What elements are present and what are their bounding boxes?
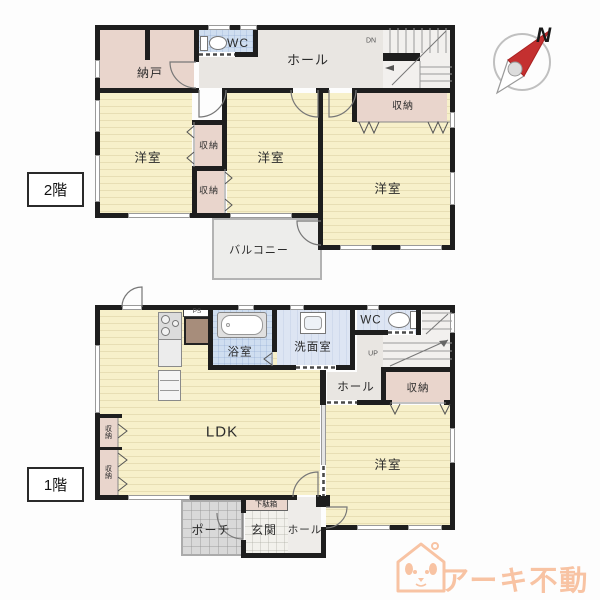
window <box>450 172 455 205</box>
room-label-washroom: 洗面室 <box>294 342 332 354</box>
wall <box>316 88 329 93</box>
window <box>95 345 100 413</box>
floor-tag-2f: 2階 <box>27 172 84 207</box>
wall <box>357 400 386 405</box>
window <box>240 25 257 30</box>
stove-burner-icon <box>161 327 170 336</box>
wall <box>383 367 452 372</box>
pipe-space-label: PS <box>193 309 202 316</box>
wall <box>356 88 452 93</box>
company-logo-text: アーキ不動産 <box>441 559 600 600</box>
wall <box>100 414 122 418</box>
wall <box>208 305 213 366</box>
floor-tag-2f-label: 2階 <box>44 179 67 200</box>
wall <box>95 88 199 93</box>
window <box>408 525 442 530</box>
room-label-closet-left-lower: 収納 <box>105 465 112 479</box>
window <box>400 245 442 250</box>
wall <box>194 25 199 62</box>
room-1f-stairs-upper <box>422 310 450 335</box>
wall <box>272 305 277 352</box>
room-label-closet-right-2f: 収納 <box>392 102 414 112</box>
door-arc <box>122 287 142 307</box>
wall <box>235 52 258 57</box>
room-label-nando: 納戸 <box>137 67 163 79</box>
window <box>367 305 379 310</box>
wall <box>192 169 197 213</box>
room-label-ldk: LDK <box>206 425 238 440</box>
room-label-entrance-hall: ホール <box>288 525 323 536</box>
wall <box>208 365 296 370</box>
room-1f-stairs <box>383 335 450 367</box>
bathtub-drain <box>226 323 230 327</box>
toilet-bowl-icon <box>388 312 410 328</box>
room-label-bedroom-right-2f: 洋室 <box>374 183 401 196</box>
duct-box <box>184 317 210 345</box>
compass-north-label: N <box>536 24 552 47</box>
washbasin-inner <box>304 316 322 330</box>
stove-burner-icon <box>172 320 179 327</box>
room-label-porch: ポーチ <box>191 524 230 536</box>
wall <box>241 497 246 513</box>
wall <box>444 400 450 405</box>
room-label-hall-1f: ホール <box>337 382 375 394</box>
floor-tag-1f: 1階 <box>27 467 84 502</box>
room-label-closet-upper-2f: 収納 <box>199 142 219 151</box>
window <box>95 155 100 202</box>
window <box>290 305 304 310</box>
wall <box>222 120 227 169</box>
wall <box>145 25 150 60</box>
window <box>128 213 190 218</box>
wall <box>350 305 355 370</box>
floor-plan: N 納戸 WC ホール DN 収納 洋室 収納 収納 洋室 洋室 バルコニー P… <box>0 0 600 600</box>
wall <box>226 88 293 93</box>
window <box>357 525 390 530</box>
window <box>450 112 455 128</box>
room-label-bedroom-center-2f: 洋室 <box>257 152 284 165</box>
wall <box>222 88 227 123</box>
wall <box>386 400 392 405</box>
company-logo-icon <box>398 543 444 591</box>
floor-tag-1f-label: 1階 <box>44 474 67 495</box>
room-label-wc-1f: WC <box>360 315 381 327</box>
wall <box>100 447 122 450</box>
room-label-genkan: 玄関 <box>251 524 277 536</box>
toilet-icon <box>200 36 208 51</box>
kitchen-island-line <box>160 380 179 381</box>
wall <box>241 553 326 558</box>
window <box>95 60 100 78</box>
wall <box>316 495 330 507</box>
wall <box>450 25 455 250</box>
window <box>128 495 190 500</box>
wall <box>318 88 323 250</box>
wall <box>241 540 246 558</box>
room-label-closet-left-upper: 収納 <box>105 425 112 439</box>
window <box>340 245 372 250</box>
window <box>238 305 254 310</box>
window <box>230 213 292 218</box>
stairs-up-label: UP <box>368 351 378 358</box>
room-label-bedroom-1f: 洋室 <box>374 459 401 472</box>
wall <box>450 305 455 530</box>
room-label-wc-2f: WC <box>227 37 249 49</box>
stairs-dn-label: DN <box>366 38 376 45</box>
wall <box>352 88 357 122</box>
wall <box>353 330 388 335</box>
room-label-closet-1f: 収納 <box>407 383 430 394</box>
window <box>450 313 455 333</box>
room-label-bedroom-left-2f: 洋室 <box>134 152 161 165</box>
window <box>450 428 455 463</box>
wall <box>383 53 420 61</box>
room-label-closet-lower-2f: 収納 <box>199 187 219 196</box>
shoe-cabinet-label: 下駄箱 <box>255 500 278 508</box>
window <box>122 305 142 310</box>
compass-icon: N <box>494 24 552 93</box>
room-label-hall-2f: ホール <box>287 54 329 67</box>
toilet-bowl-icon <box>209 36 227 50</box>
sliding-partition <box>321 405 326 465</box>
room-label-balcony: バルコニー <box>229 246 289 257</box>
window <box>208 25 230 30</box>
wall <box>320 368 326 405</box>
kitchen-island-line <box>160 390 179 391</box>
wall <box>416 305 421 335</box>
stove-burner-icon <box>161 315 170 324</box>
kitchen-island-icon <box>158 370 181 401</box>
window <box>95 100 100 132</box>
room-label-bath: 浴室 <box>228 347 253 359</box>
